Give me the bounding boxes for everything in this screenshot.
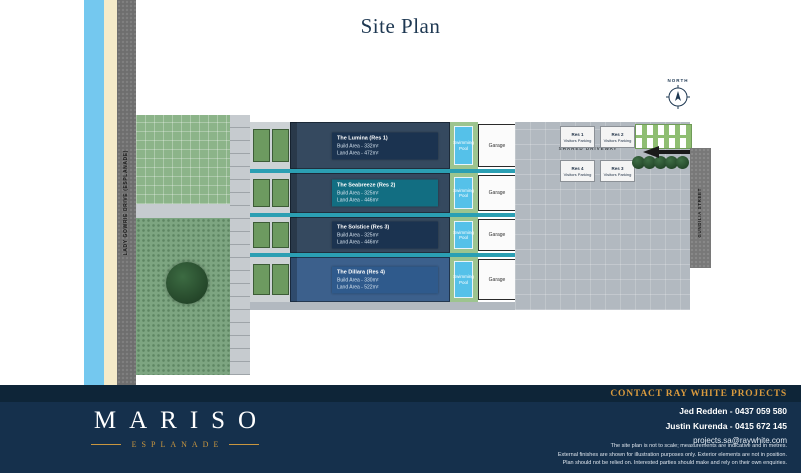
contact-block: Jed Redden - 0437 059 580 Justin Kurenda… [666,406,787,445]
hedge [253,222,270,247]
residence-build-area: Build Area - 332m² [337,143,433,149]
north-label: NORTH [658,78,698,83]
agent-contact: Justin Kurenda - 0415 672 145 [666,421,787,431]
residence-name: The Dillara (Res 4) [337,269,433,275]
brand-subtitle-row: ESPLANADE [75,440,275,449]
front-yard [250,122,290,169]
footer-topbar: CONTACT RAY WHITE PROJECTS [0,385,801,402]
entry-arrow-icon [643,146,691,158]
pool-label: Swimming Pool [453,188,474,199]
front-yard [250,257,290,302]
front-yard [250,173,290,213]
house-roof-res-3: The Solstice (Res 3) Build Area - 325m² … [290,217,450,253]
pool-label: Swimming Pool [453,274,474,285]
footpath [230,115,250,375]
hedge [253,179,270,207]
residence-name: The Solstice (Res 3) [337,225,433,231]
rear-lawn: Swimming Pool [450,217,478,253]
agent-contact: Jed Redden - 0437 059 580 [666,406,787,416]
disclaimer-line: Plan should not be relied on. Interested… [558,459,787,468]
hedge [272,129,289,162]
north-compass: NORTH [658,78,698,114]
residence-build-area: Build Area - 325m² [337,233,433,239]
residence-land-area: Land Area - 472m² [337,150,433,156]
disclaimer-line: External finishes are shown for illustra… [558,451,787,460]
hedge [253,264,270,295]
parking-label: Visitors Parking [564,172,592,177]
lot-res-1: The Lumina (Res 1) Build Area - 332m² La… [250,122,515,169]
shared-driveway: SHARED DRIVEWAY Res 1 Visitors Parking R… [515,122,690,310]
residence-label-res-1: The Lumina (Res 1) Build Area - 332m² La… [332,132,438,159]
residence-label-res-4: The Dillara (Res 4) Build Area - 330m² L… [332,266,438,293]
hedge [272,179,289,207]
hedge [272,264,289,295]
lot-res-4: The Dillara (Res 4) Build Area - 330m² L… [250,257,515,302]
disclaimer: The site plan is not to scale; measureme… [558,442,787,468]
rear-lawn: Swimming Pool [450,257,478,302]
residence-land-area: Land Area - 446m² [337,198,433,204]
visitor-parking-res-2: Res 2 Visitors Parking [600,126,635,148]
hedge [253,129,270,162]
swimming-pool: Swimming Pool [454,261,473,298]
tree [166,262,208,304]
residence-name: The Lumina (Res 1) [337,135,433,141]
garage: Garage [478,175,516,211]
left-road: LADY GOWRIE DRIVE (ESPLANADE) [117,0,136,385]
rear-lawn: Swimming Pool [450,173,478,213]
residence-land-area: Land Area - 446m² [337,240,433,246]
garage-label: Garage [489,277,506,283]
swimming-pool: Swimming Pool [454,177,473,209]
left-road-label: LADY GOWRIE DRIVE (ESPLANADE) [123,150,129,255]
residence-land-area: Land Area - 522m² [337,284,433,290]
parking-label: Visitors Parking [604,172,632,177]
front-yard [250,217,290,253]
garage: Garage [478,219,516,251]
house-roof-res-4: The Dillara (Res 4) Build Area - 330m² L… [290,257,450,302]
brand-line [91,444,121,445]
garage-label: Garage [489,143,506,149]
site-plan-page: Site Plan LADY GOWRIE DRIVE (ESPLANADE) … [0,0,801,473]
house-roof-res-1: The Lumina (Res 1) Build Area - 332m² La… [290,122,450,169]
contact-heading: CONTACT RAY WHITE PROJECTS [610,389,801,399]
lot-res-3: The Solstice (Res 3) Build Area - 325m² … [250,217,515,253]
residence-label-res-2: The Seabreeze (Res 2) Build Area - 325m²… [332,180,438,207]
visitor-parking-res-3: Res 3 Visitors Parking [600,160,635,182]
hedge [272,222,289,247]
right-road: GUNDILIA STREET [690,148,711,268]
residence-label-res-3: The Solstice (Res 3) Build Area - 325m² … [332,222,438,249]
footer: CONTACT RAY WHITE PROJECTS MARISO ESPLAN… [0,385,801,473]
brand-name: MARISO [75,407,275,435]
paving-strip [250,302,515,310]
pool-label: Swimming Pool [453,140,474,151]
parking-res: Res 2 [611,132,623,137]
parking-label: Visitors Parking [604,138,632,143]
lot-res-2: The Seabreeze (Res 2) Build Area - 325m²… [250,173,515,213]
parking-res: Res 4 [571,166,583,171]
brand-line [229,444,259,445]
rear-lawn: Swimming Pool [450,122,478,169]
pool-label: Swimming Pool [453,230,474,241]
visitor-parking-res-4: Res 4 Visitors Parking [560,160,595,182]
right-road-label: GUNDILIA STREET [697,188,702,238]
garage-label: Garage [489,190,506,196]
swimming-pool: Swimming Pool [454,126,473,165]
garage: Garage [478,124,516,167]
residence-build-area: Build Area - 330m² [337,277,433,283]
residence-build-area: Build Area - 325m² [337,191,433,197]
garage-label: Garage [489,232,506,238]
parking-res: Res 1 [571,132,583,137]
parking-label: Visitors Parking [564,138,592,143]
brand-subtitle: ESPLANADE [127,440,224,449]
ocean-strip [84,0,104,385]
visitor-parking-res-1: Res 1 Visitors Parking [560,126,595,148]
house-roof-res-2: The Seabreeze (Res 2) Build Area - 325m²… [290,173,450,213]
swimming-pool: Swimming Pool [454,221,473,249]
parking-res: Res 3 [611,166,623,171]
compass-icon [666,85,690,109]
beach-strip [104,0,117,385]
brand-logo: MARISO ESPLANADE [75,407,275,449]
garage: Garage [478,259,516,300]
residence-name: The Seabreeze (Res 2) [337,183,433,189]
disclaimer-line: The site plan is not to scale; measureme… [558,442,787,451]
